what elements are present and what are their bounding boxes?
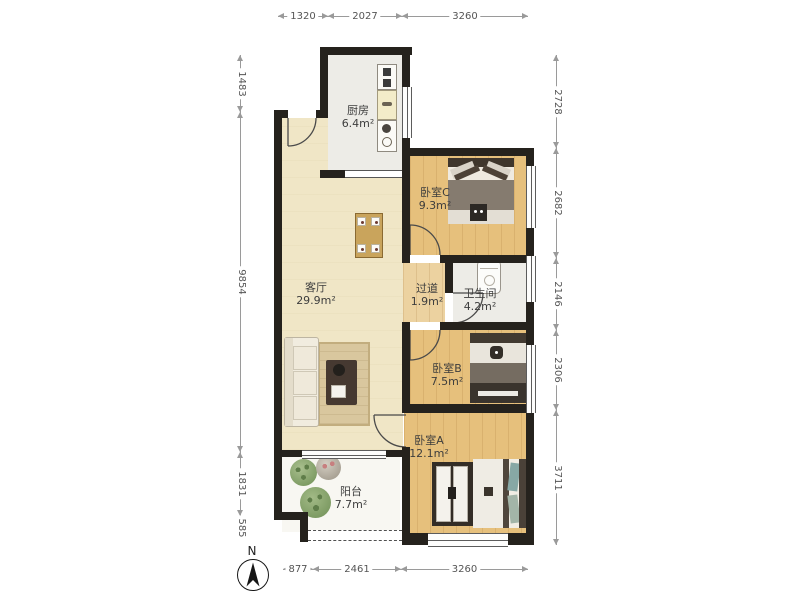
- window-bedroomC: [526, 166, 536, 228]
- room-area: 7.7m²: [328, 498, 374, 511]
- wall: [402, 533, 428, 545]
- room-label-bedroomA: 卧室A 12.1m²: [403, 434, 455, 460]
- wall: [282, 450, 302, 457]
- dimension-left-4: 585: [234, 516, 248, 540]
- room-label-bedroomC: 卧室C 9.3m²: [412, 186, 458, 212]
- room-label-balcony: 阳台 7.7m²: [328, 485, 374, 511]
- door-arcs: [0, 0, 800, 600]
- dimension-top-2: 2027: [328, 10, 402, 24]
- room-label-hallway: 过道 1.9m²: [404, 282, 450, 308]
- compass-n-label: N: [236, 544, 268, 558]
- window-balcony-living: [302, 450, 386, 459]
- dimension-bottom-1: 877: [283, 563, 313, 577]
- wall: [402, 447, 410, 535]
- dimension-left-1: 1483: [234, 55, 248, 112]
- window-bathroom: [526, 256, 536, 302]
- room-name: 客厅: [290, 281, 342, 294]
- wall: [320, 47, 328, 118]
- wall: [316, 110, 328, 118]
- north-arrow-icon: [238, 560, 268, 590]
- dimension-right-3: 2146: [550, 258, 564, 330]
- wall: [274, 110, 282, 520]
- door-bedroomC-arc: [410, 225, 440, 255]
- door-entrance-arc: [288, 118, 316, 146]
- compass: N: [236, 544, 268, 594]
- door-bedroomA-arc: [374, 415, 406, 447]
- wall: [320, 170, 345, 178]
- wall: [402, 148, 534, 156]
- room-area: 12.1m²: [403, 447, 455, 460]
- room-name: 卧室C: [412, 186, 458, 199]
- wall: [402, 322, 410, 330]
- wall: [440, 322, 534, 330]
- kitchen-sliding-opening: [345, 170, 402, 178]
- room-name: 卧室A: [403, 434, 455, 447]
- room-label-bathroom: 卫生间 4.2m²: [452, 287, 508, 313]
- compass-circle: [237, 559, 269, 591]
- dimension-bottom-3: 3260: [401, 563, 528, 577]
- wall: [402, 330, 410, 404]
- dimension-left-3: 1831: [234, 452, 248, 516]
- room-area: 1.9m²: [404, 295, 450, 308]
- wall: [440, 255, 534, 263]
- floor-plan-canvas: 厨房 6.4m² 卧室C 9.3m² 客厅 29.9m² 过道 1.9m² 卫生…: [0, 0, 800, 600]
- room-name: 卫生间: [452, 287, 508, 300]
- dimension-top-3: 3260: [402, 10, 528, 24]
- room-label-bedroomB: 卧室B 7.5m²: [424, 362, 470, 388]
- room-name: 阳台: [328, 485, 374, 498]
- wall: [402, 404, 534, 413]
- window-kitchen: [402, 87, 412, 138]
- dimension-right-5: 3711: [550, 410, 564, 545]
- room-area: 29.9m²: [290, 294, 342, 307]
- wall: [300, 512, 308, 542]
- wall: [402, 47, 410, 87]
- window-bedroomB: [526, 345, 536, 413]
- room-name: 卧室B: [424, 362, 470, 375]
- door-bedroomB-arc: [410, 330, 440, 360]
- room-area: 7.5m²: [424, 375, 470, 388]
- window-bedroomA: [428, 533, 508, 547]
- wall: [320, 47, 412, 55]
- room-area: 6.4m²: [333, 117, 383, 130]
- room-label-kitchen: 厨房 6.4m²: [333, 104, 383, 130]
- dimension-top-1: 1320: [278, 10, 328, 24]
- room-name: 过道: [404, 282, 450, 295]
- wall: [386, 450, 404, 457]
- dimension-left-2: 9854: [234, 112, 248, 452]
- wall: [508, 533, 534, 545]
- room-label-living: 客厅 29.9m²: [290, 281, 342, 307]
- dimension-bottom-2: 2461: [313, 563, 401, 577]
- room-name: 厨房: [333, 104, 383, 117]
- dimension-right-4: 2306: [550, 330, 564, 410]
- dimension-right-1: 2728: [550, 55, 564, 148]
- room-area: 4.2m²: [452, 300, 508, 313]
- dimension-right-2: 2682: [550, 148, 564, 258]
- wall: [402, 156, 410, 263]
- room-area: 9.3m²: [412, 199, 458, 212]
- balcony-open-edge: [308, 530, 402, 541]
